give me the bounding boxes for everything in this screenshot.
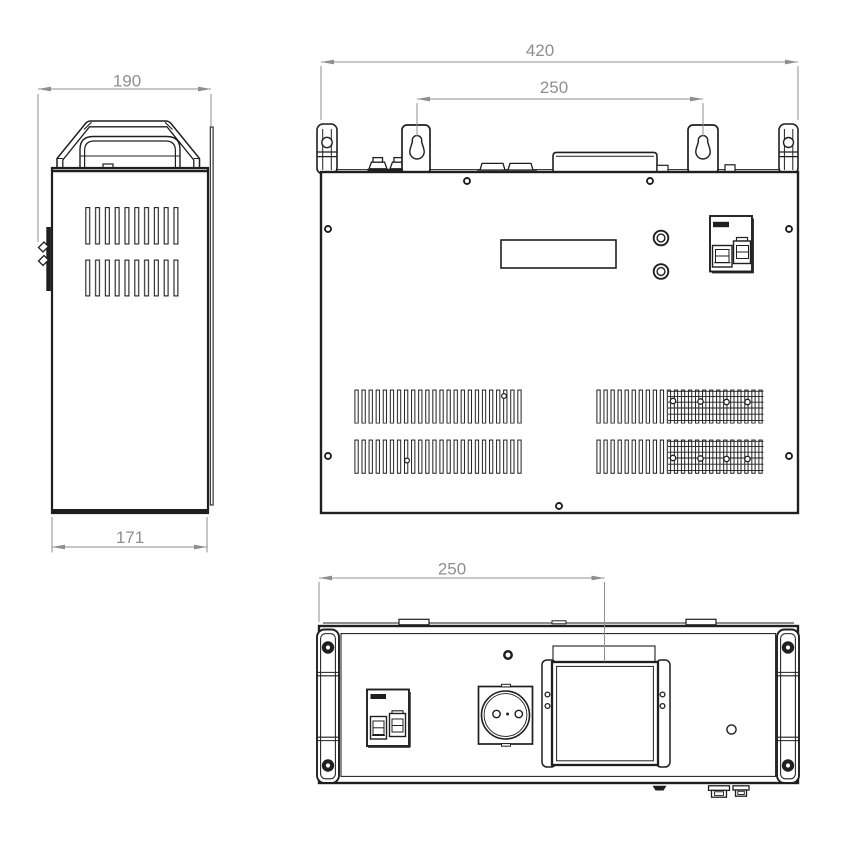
arrow-left-icon [417, 97, 430, 102]
cable-gland [653, 786, 667, 791]
side-vent-row-1 [83, 207, 180, 245]
dim-label-terminal-offset: 250 [438, 560, 466, 579]
screw-icon [545, 692, 550, 697]
top-cover-strip [553, 152, 657, 172]
carry-handle-side [57, 121, 200, 169]
side-view: 190 171 [38, 72, 213, 553]
arrow-left-icon [52, 545, 65, 550]
screw-icon [325, 226, 331, 232]
side-vent-row-2 [83, 260, 180, 297]
lcd-display [501, 240, 616, 268]
screw-icon [660, 704, 665, 709]
stabilizer-technical-drawing: 190 171 [0, 0, 850, 850]
circuit-breaker-front [710, 216, 753, 273]
breaker-label [713, 222, 729, 227]
dimension-side-base-width: 171 [52, 517, 207, 553]
breaker-toggle-right [390, 711, 406, 737]
keyhole-bracket-left [402, 125, 430, 174]
side-terminal-knobs [39, 227, 51, 291]
screw-icon [556, 503, 562, 509]
bottom-view: 250 [317, 560, 799, 798]
screw-icon [325, 453, 331, 459]
dim-label-mount-spacing: 250 [540, 78, 568, 97]
arrow-right-icon [592, 576, 605, 581]
mount-tab-right [686, 619, 716, 625]
circuit-breaker-bottom [367, 690, 410, 748]
screw-icon [786, 226, 792, 232]
connector-plug [733, 786, 749, 796]
bottom-connectors [653, 786, 750, 797]
power-socket [479, 684, 533, 746]
arrow-left-icon [319, 576, 332, 581]
screw-icon [464, 178, 470, 184]
arrow-left-icon [321, 60, 334, 65]
technical-drawing-page: 190 171 [0, 0, 850, 850]
front-view: 420 250 [317, 41, 798, 513]
screw-icon [786, 453, 792, 459]
breaker-toggle-left [713, 246, 733, 268]
breaker-toggle-left [371, 717, 387, 740]
arrow-right-icon [194, 545, 207, 550]
arrow-right-icon [198, 87, 211, 92]
screw-icon [647, 178, 653, 184]
handle-end-left [317, 124, 337, 174]
screw-icon [660, 692, 665, 697]
wall-plate-edge [210, 127, 213, 505]
terminal-box [542, 646, 670, 767]
arrow-right-icon [785, 60, 798, 65]
screw-icon [545, 704, 550, 709]
keyhole-slot-icon [410, 136, 424, 159]
keyhole-slot-icon [696, 136, 710, 159]
breaker-toggle-right [734, 238, 751, 264]
breaker-label [371, 694, 387, 699]
handle-end-right [779, 124, 798, 174]
dimension-front-mount-spacing: 250 [417, 78, 703, 136]
arrow-right-icon [690, 97, 703, 102]
arrow-left-icon [38, 87, 51, 92]
mount-tab-left [399, 619, 429, 625]
dim-label-side-width: 190 [113, 72, 141, 91]
dim-label-side-base: 171 [116, 528, 144, 547]
bottom-rail-left [317, 630, 339, 784]
bottom-rail-right [777, 630, 799, 784]
connector-plug [709, 786, 730, 797]
dim-label-front-width: 420 [526, 41, 554, 60]
